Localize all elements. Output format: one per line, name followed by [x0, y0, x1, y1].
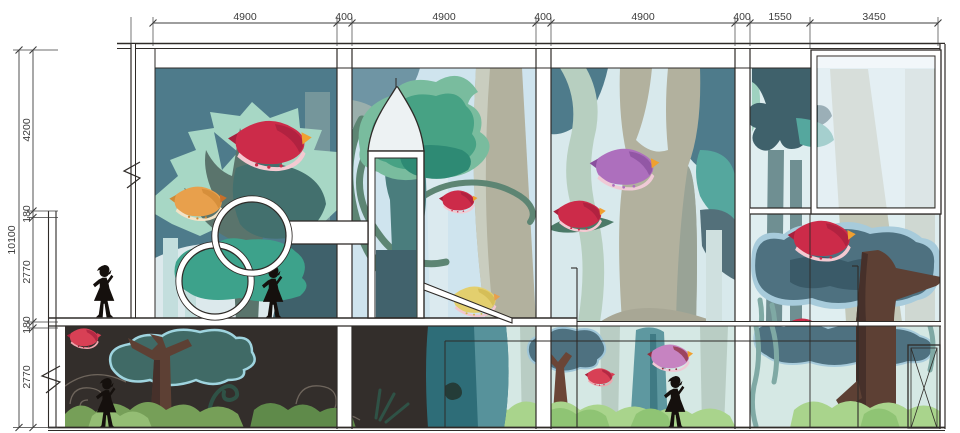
- dim-label-top-1: 4900: [233, 12, 256, 23]
- mural-lower-dark: [60, 326, 470, 428]
- dim-label-left-10100: 10100: [7, 225, 18, 254]
- dim-label-top-8: 3450: [862, 12, 885, 23]
- girl-silhouette-platform: [93, 265, 114, 317]
- dim-label-top-3: 4900: [432, 12, 455, 23]
- dim-label-left-180b: 180: [22, 316, 33, 334]
- left-wall: [124, 44, 140, 326]
- dim-label-top-7: 1550: [768, 12, 791, 23]
- window-frame: [811, 50, 941, 214]
- dim-label-top-2: 400: [335, 12, 353, 23]
- break-symbol: [124, 162, 140, 188]
- dim-label-top-4: 400: [534, 12, 552, 23]
- mural-panel-2: [349, 68, 536, 322]
- dim-label-left-2770b: 2770: [22, 365, 33, 388]
- mural-panel-3: [551, 68, 735, 322]
- dim-label-left-4200: 4200: [22, 118, 33, 141]
- elevation-svg: [0, 0, 960, 433]
- ground-line: [48, 428, 945, 431]
- dim-label-left-2770a: 2770: [22, 260, 33, 283]
- bridge-tube: [288, 221, 368, 244]
- dim-label-left-180a: 180: [22, 205, 33, 223]
- elevation-drawing: 4900 400 4900 400 4900 400 1550 3450 420…: [0, 0, 960, 433]
- dim-label-top-5: 4900: [631, 12, 654, 23]
- roof-slab: [117, 44, 945, 49]
- break-symbol: [42, 366, 60, 393]
- mural-artwork: [60, 68, 941, 428]
- dim-label-top-6: 400: [733, 12, 751, 23]
